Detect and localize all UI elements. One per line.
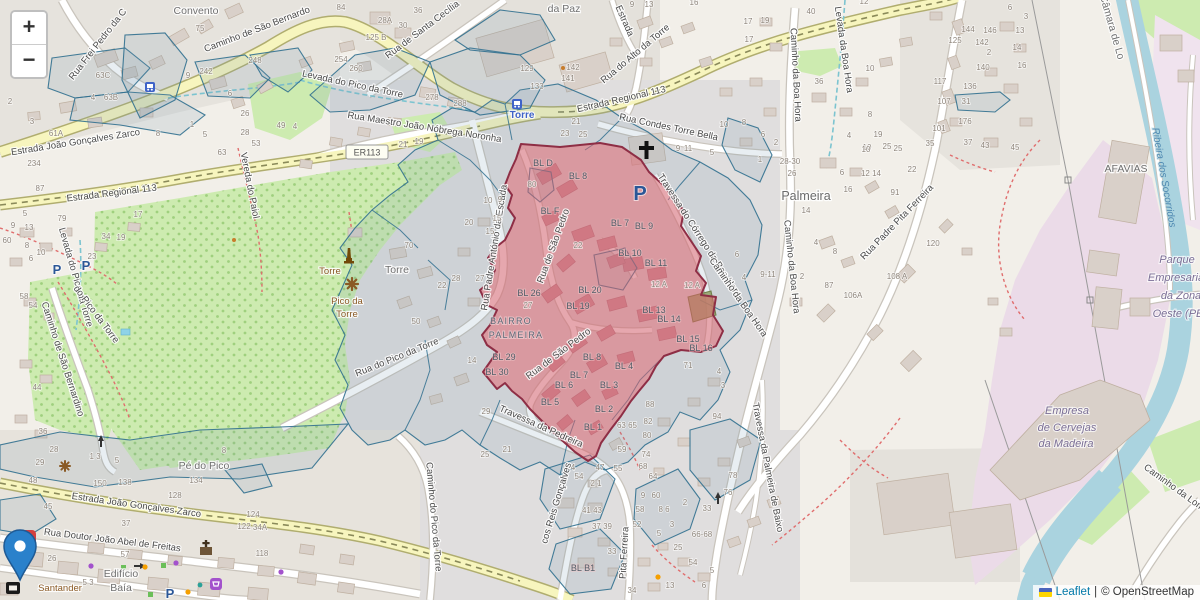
house-number: 6 [840,168,845,177]
house-number: 41 43 [582,506,603,515]
house-number: 23 [88,252,97,261]
house-number: 176 [958,117,972,126]
bus-stop-icon [145,82,155,92]
bus-stop-icon [512,99,522,109]
house-number: 31 [962,97,971,106]
house-number: 28 [50,445,59,454]
house-number: 34A [253,523,268,532]
place-label: Edifício [104,568,139,580]
place-label: PALMEIRA [489,330,543,340]
house-number: 30 [399,21,408,30]
house-number: 140 [976,63,990,72]
house-number: 33 [703,504,712,513]
landuse-label: Oeste (PE [1153,308,1200,320]
house-number: 2 [683,498,688,507]
house-number: 5 [710,148,715,157]
house-number: 4 [571,463,576,472]
place-label: da Paz [548,3,581,15]
house-number: 37 [122,519,131,528]
house-number: 10 [866,64,875,73]
house-number: 28 [241,128,250,137]
house-number: 146 [983,26,997,35]
house-number: 10 [37,248,46,257]
house-number: 22 [908,165,917,174]
house-number: 88 [646,400,655,409]
house-number: 9-11 [760,270,776,279]
house-number: 66-68 [692,530,713,539]
house-number: 13 [1016,26,1025,35]
house-number: 122 [237,522,251,531]
block-label: BL 19 [566,301,589,311]
house-number: 142 [566,63,580,72]
house-number: 4 [717,367,722,376]
house-number: 84 [337,3,346,12]
house-number: 34 [628,586,637,595]
parking-icon: P [633,183,646,205]
poi-label: Torre [336,309,358,320]
house-number: 9 [676,144,681,153]
house-number: 260 [349,64,363,73]
house-number: 29 [482,407,491,416]
house-number: 6 [702,581,707,590]
house-number: 12 A [651,280,668,289]
house-number: 101 [932,124,946,133]
house-number: 13 [645,0,654,9]
house-number: 8 [742,118,747,127]
house-number: 3 [670,520,675,529]
house-number: 2 [774,138,779,147]
house-number: 34 [102,232,111,241]
house-number: 87 [825,281,834,290]
block-label: BL F [541,206,560,216]
house-number: 75 [196,24,205,33]
house-number: 6 [1008,3,1013,12]
house-number: 5 3 [82,578,94,587]
house-number: 50 [412,317,421,326]
house-number: 13 [666,581,675,590]
house-number: 16 [844,185,853,194]
house-number: 3 [721,381,726,390]
house-number: 15 [493,214,502,223]
house-number: 15 [486,227,495,236]
house-number: 9 [630,0,635,9]
parking-icon: P [166,586,175,600]
house-number: 44 [33,383,42,392]
place-label: Pé do Pico [179,460,230,472]
attribution-bar: Leaflet | © OpenStreetMap [1033,585,1200,600]
house-number: 33 [608,547,617,556]
block-label: BL 7 [570,370,588,380]
house-number: 21 [503,445,512,454]
house-number: 87 [36,184,45,193]
house-number: 4 [814,238,819,247]
house-number: 37 [964,138,973,147]
house-number: 21 [572,117,581,126]
place-label: Baía [110,582,132,594]
house-number: 133 [530,82,544,91]
house-number: 4 [742,273,747,282]
landuse-label: da Madeira [1038,438,1093,450]
house-number: 14 [802,206,811,215]
house-number: 9 [11,221,16,230]
block-label: BL 2 [595,404,613,414]
house-number: 144 [961,25,975,34]
house-number: 3 [1024,12,1029,21]
block-label: BL 8 [569,171,587,181]
house-number: 78 [729,471,738,480]
zoom-out-button[interactable]: − [12,45,46,77]
house-number: 63C [96,71,111,80]
house-number: 9 [498,195,503,204]
leaflet-link[interactable]: Leaflet [1056,586,1091,598]
shopping-cart-icon [210,578,222,590]
house-number: 13 [25,223,34,232]
house-number: 234 [27,159,41,168]
poi-label: Torre [319,266,341,277]
house-number: 76 [724,488,733,497]
house-number: 134 [189,476,203,485]
block-label: BL 10 [618,248,641,258]
ukraine-flag-icon [1039,588,1052,597]
house-number: 48 [29,476,38,485]
map-tiles: ER113 Rua Frei Pedro da CCaminho de São … [0,0,1200,600]
house-number: 27 [476,274,485,283]
house-number: 248 [248,56,262,65]
house-number: 16 [1018,61,1027,70]
place-label: BAIRRO [490,316,532,326]
house-number: 25 [481,450,490,459]
block-label: BL 4 [615,361,633,371]
house-number: 12 A [684,281,701,290]
place-label: Palmeira [781,189,830,203]
place-label: AFAVIAS [1105,163,1148,175]
house-number: 125 B [366,33,387,42]
house-number: 125 [948,36,962,45]
house-number: 36 [39,427,48,436]
house-number: 47 [596,463,605,472]
house-number: 61A [49,129,64,138]
house-number: 80 [528,180,537,189]
house-number: 25 [883,142,892,151]
house-number: 124 [246,510,260,519]
attribution-separator: | [1094,586,1097,598]
place-label: Torre [385,264,409,276]
house-number: 129 [520,64,534,73]
house-number: 2 [8,97,13,106]
house-number: 3 [30,117,35,126]
landuse-label: Empresa [1045,405,1089,417]
house-number: 28A [378,16,393,25]
block-label: BL 20 [578,285,601,295]
house-number: 16 [690,0,699,7]
house-number: 118 [256,549,269,558]
house-number: 28 [452,274,461,283]
house-number: 1 [758,155,763,164]
house-number: 5 [23,209,28,218]
house-number: 2 1 [590,479,602,488]
house-number: 17 [134,210,143,219]
pool-icon [121,329,130,335]
house-number: 23 [561,129,570,138]
house-number: 68 [639,462,648,471]
house-number: 21 [399,140,408,149]
block-label: BL 29 [492,352,515,362]
house-number: 6 [29,254,34,263]
house-number: 8 6 [658,505,670,514]
house-number: 10 [484,196,493,205]
house-number: 45 [44,502,53,511]
house-number: 58 [20,292,29,301]
house-number: 6 [735,250,740,259]
house-number: 17 [744,17,753,26]
poi-label: Santander [38,583,82,594]
house-number: 10 [862,145,871,154]
house-number: 9 [641,491,646,500]
house-number: 55 [614,464,623,473]
landuse-label: de Cervejas [1038,422,1097,434]
house-number: 37 39 [592,522,613,531]
house-number: 20 [465,218,474,227]
house-number: 108 A [887,272,908,281]
block-label: BL 9 [635,221,653,231]
viewpoint-icon [346,278,358,290]
house-number: 142 [975,38,989,47]
house-number: 12 14 [861,169,882,178]
house-number: 1 [190,120,195,129]
house-number: 71 [684,361,693,370]
house-number: 63B [104,93,118,102]
block-label: BL 5 [541,397,559,407]
house-number: 4 [293,122,298,131]
map-canvas[interactable]: ER113 Rua Frei Pedro da CCaminho de São … [0,0,1200,600]
house-number: 70 [405,241,414,250]
house-number: 138 [118,478,132,487]
house-number: 19 [117,233,126,242]
house-number: 5 [710,566,715,575]
zoom-in-button[interactable]: + [12,12,46,45]
house-number: 14 [1013,43,1022,52]
house-number: 8 [868,110,873,119]
house-number: 4 [847,131,852,140]
house-number: 9 [186,71,191,80]
house-number: 1 3 [89,452,101,461]
house-number: 5 [657,529,662,538]
house-number: 26 [241,109,250,118]
house-number: 35 [926,139,935,148]
house-number: 128 [168,491,182,500]
poi-label: Pico da [331,296,363,307]
house-number: 2 [987,48,992,57]
landuse-label: Parque [1159,254,1194,266]
house-number: 49 [277,121,286,130]
landuse-label: Empresaria [1148,272,1200,284]
block-label: BL 30 [485,367,508,377]
block-label: BL 7 [611,218,629,228]
house-number: 26 [48,554,57,563]
house-number: 29 [36,458,45,467]
house-number: 141 [561,74,575,83]
house-number: 28-30 [780,157,801,166]
osm-link[interactable]: © OpenStreetMap [1101,586,1194,598]
house-number: 150 [93,479,107,488]
house-number: 80 [643,431,652,440]
house-number: 25 [894,144,903,153]
zoom-control: + − [10,10,48,79]
house-number: 60 [3,236,12,245]
house-number: 8 [25,241,30,250]
house-number: 57 [121,550,130,559]
house-number: 91 [891,188,900,197]
house-number: 43 [981,141,990,150]
house-number: 8 [156,129,161,138]
house-number: 107 [937,97,951,106]
house-number: 8 [833,247,838,256]
house-number: 12 [860,0,869,6]
house-number: 63 [218,148,227,157]
house-number: 36 [815,77,824,86]
house-number: 10 [720,120,729,129]
house-number: 60 [652,491,661,500]
house-number: 288 [453,99,467,108]
house-number: 27 [524,301,533,310]
house-number: 54 [575,472,584,481]
house-number: 8 [222,446,227,455]
house-number: 94 [713,412,722,421]
parking-icon: P [53,262,62,277]
atm-icon [6,582,20,594]
house-number: 19 [415,137,424,146]
house-number: 25 [674,543,683,552]
house-number: 64 [649,472,658,481]
house-number: 117 [934,77,947,86]
block-label: BL 14 [657,314,680,324]
house-number: 25 [579,130,588,139]
house-number: 120 [926,239,940,248]
block-label: BL 1 [584,422,602,432]
house-number: 53 [252,139,261,148]
house-number: 82 [644,417,653,426]
block-label: BL 8 [583,352,601,362]
house-number: 58 [636,505,645,514]
viewpoint-icon [60,461,70,471]
house-number: 4 [91,93,96,102]
house-number: 2 [800,272,805,281]
house-number: 22 [438,281,447,290]
house-number: 5 [115,456,120,465]
house-number: 54 [29,301,38,310]
house-number: 136 [963,82,977,91]
landuse-label: da Zona [1161,290,1200,302]
house-number: 54 [689,558,698,567]
place-label: Convento [174,5,219,17]
house-number: 6 [761,130,766,139]
block-label: BL 16 [689,343,712,353]
house-number: 36 [414,6,423,15]
road-shield-label: ER113 [354,148,381,158]
house-number: 26 [788,169,797,178]
house-number: 74 [642,450,651,459]
house-number: 242 [199,67,213,76]
road-shield: ER113 [346,145,388,159]
house-number: 5 [203,130,208,139]
house-number: 59 [618,445,627,454]
block-label: BL 26 [517,288,540,298]
house-number: 22 [574,241,583,250]
house-number: 52 [633,520,642,529]
house-number: 278 [425,93,439,102]
house-number: 40 [807,7,816,16]
house-number: 45 [1011,143,1020,152]
house-number: 254 [334,55,348,64]
block-label: BL B1 [571,563,595,573]
house-number: 17 [745,35,754,44]
house-number: 19 [761,16,770,25]
house-number: 14 [468,356,477,365]
house-number: 106A [844,291,863,300]
house-number: 6 [228,89,233,98]
house-number: 79 [58,214,67,223]
house-number: 11 [684,144,693,153]
house-number: 19 [874,130,883,139]
block-label: BL D [533,158,553,168]
block-label: BL 3 [600,380,618,390]
house-number: 63 65 [617,421,638,430]
block-label: BL 6 [555,380,573,390]
block-label: BL 11 [645,258,668,268]
transit-label: Torre [510,110,535,121]
